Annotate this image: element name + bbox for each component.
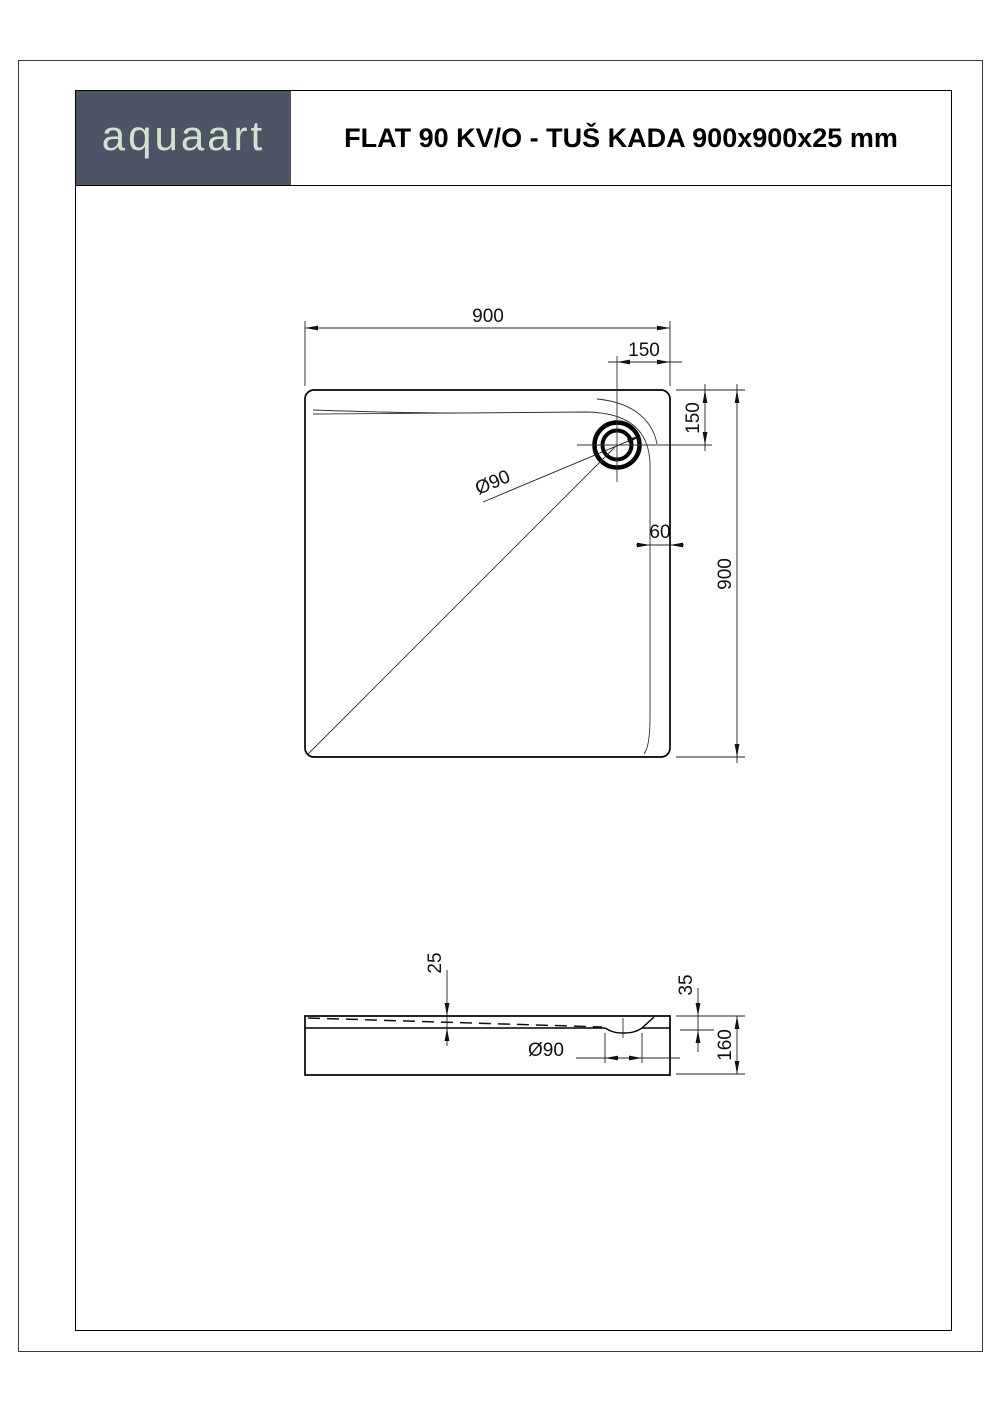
tray-interior-lines [305, 1017, 670, 1033]
dim-inner-offset-label: 60 [649, 522, 670, 543]
slope-fold-line [308, 447, 615, 754]
dim-rim-thickness-label: 25 [425, 952, 446, 973]
dim-width-lines [305, 321, 670, 386]
drain-recess-side-view [605, 1028, 642, 1033]
dim-total-height-label: 160 [715, 1029, 736, 1061]
technical-drawing: Ø90 900 150 150 [0, 0, 1000, 1414]
dim-drain-offset-right-label: 150 [683, 402, 704, 434]
dim-drain-diameter-side-label: Ø90 [528, 1040, 564, 1061]
dim-drain-diameter-side-lines [576, 1033, 680, 1063]
tray-outline-side-view [305, 1016, 670, 1075]
dim-recess-depth-label: 35 [676, 974, 697, 995]
dim-drain-offset-top-label: 150 [628, 340, 660, 361]
dim-height-label: 900 [715, 558, 736, 590]
dim-drain-diameter-top: Ø90 [472, 466, 513, 499]
dim-width-label: 900 [472, 306, 504, 327]
side-view: 25 35 160 Ø90 [305, 952, 745, 1075]
page: aquaart FLAT 90 KV/O - TUŠ KADA 900x900x… [0, 0, 1000, 1414]
top-view: Ø90 900 150 150 [305, 306, 745, 763]
hidden-slope-line [308, 1018, 602, 1027]
